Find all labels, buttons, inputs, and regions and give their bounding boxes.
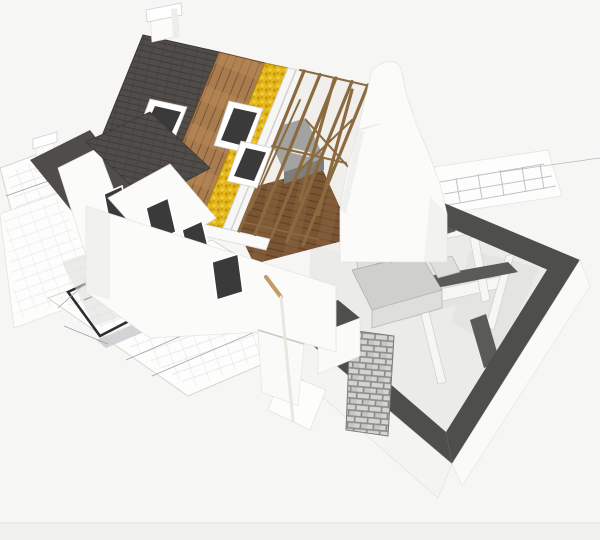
front-wall-window — [212, 254, 243, 300]
front-wall-shading — [86, 206, 110, 300]
table-edge-strip — [0, 523, 600, 540]
main-chimney — [146, 3, 182, 42]
render-canvas — [0, 0, 600, 540]
house-render-illustration — [0, 0, 600, 540]
